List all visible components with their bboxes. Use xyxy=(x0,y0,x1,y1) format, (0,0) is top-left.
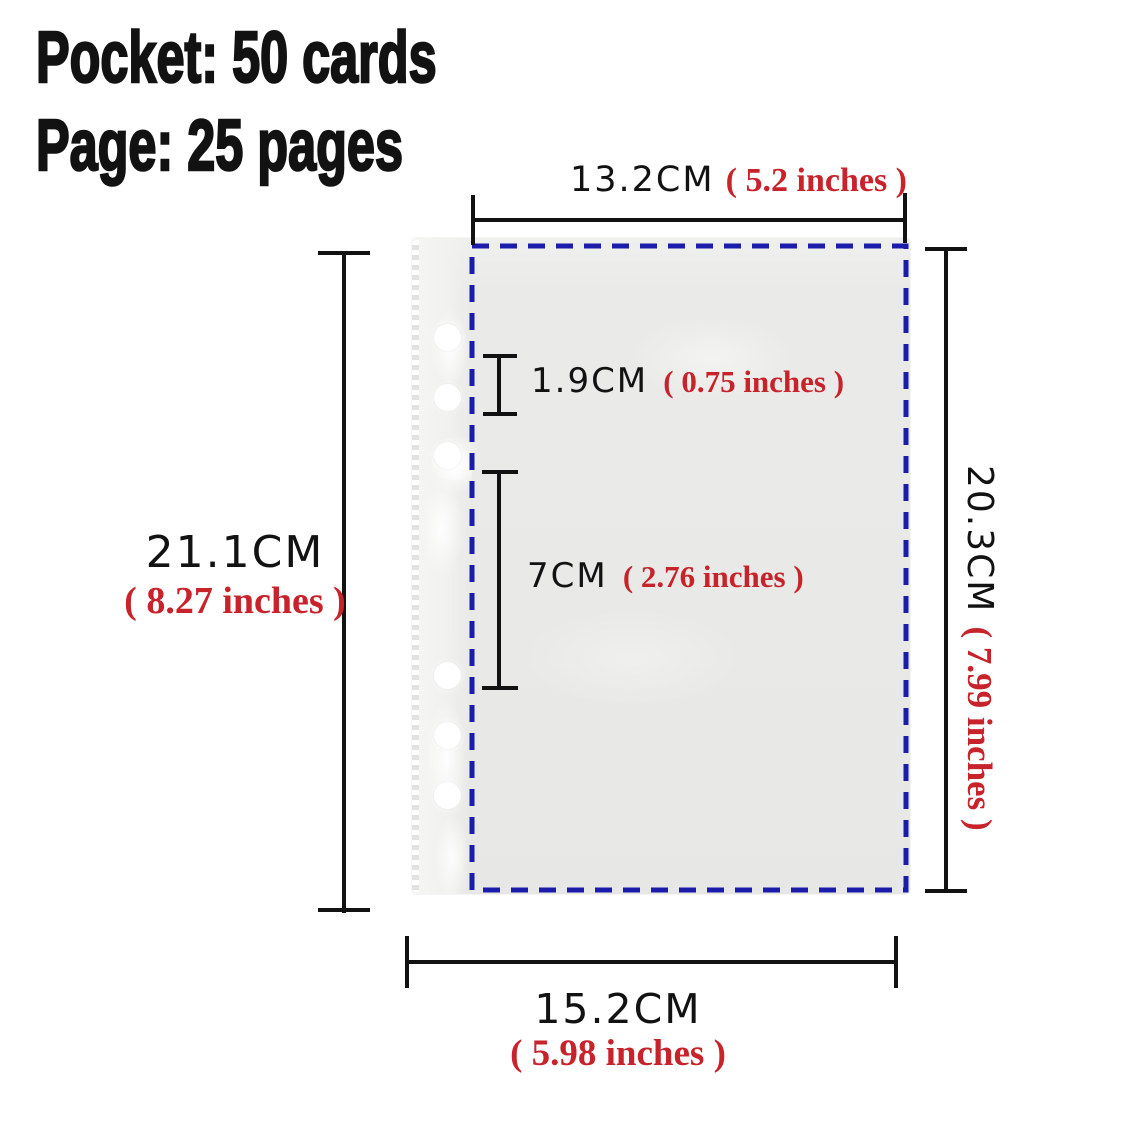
inch-value: ( 5.2 inches ) xyxy=(726,162,907,199)
dimension-label: 13.2CM ( 5.2 inches ) xyxy=(471,160,907,200)
page-count-text: Page: 25 pages xyxy=(36,102,437,190)
dimension-tick xyxy=(903,193,907,243)
cm-value: 7CM xyxy=(527,556,608,596)
dimension-tick xyxy=(318,908,370,912)
dimension-tick xyxy=(894,936,898,988)
dimension-tick xyxy=(483,354,517,358)
dimension-tick xyxy=(482,686,518,690)
dimension-label: 21.1CM ( 8.27 inches ) xyxy=(100,528,370,624)
dimension-line xyxy=(471,218,907,222)
dimension-tick xyxy=(925,889,967,893)
product-dimension-diagram: Pocket: 50 cards Page: 25 pages 13.2CM (… xyxy=(0,0,1129,1129)
dimension-line xyxy=(497,356,501,416)
dimension-tick xyxy=(318,251,370,255)
serrated-edge xyxy=(412,240,419,892)
dimension-line xyxy=(944,247,948,893)
inch-value: ( 2.76 inches ) xyxy=(623,559,804,594)
dimension-tick xyxy=(482,470,518,474)
cm-value: 1.9CM xyxy=(531,361,648,401)
dimension-tick xyxy=(925,247,967,251)
binder-hole xyxy=(434,782,461,809)
inch-value: ( 0.75 inches ) xyxy=(663,364,844,399)
pocket-count-text: Pocket: 50 cards xyxy=(36,14,437,102)
cm-value: 20.3CM xyxy=(959,465,1000,613)
dimension-label: 15.2CM ( 5.98 inches ) xyxy=(418,986,818,1076)
dimension-line xyxy=(405,960,898,964)
dimension-tick xyxy=(483,412,517,416)
dimension-label: 1.9CM ( 0.75 inches ) xyxy=(531,361,844,401)
inch-value: ( 5.98 inches ) xyxy=(418,1032,818,1076)
dimension-label: 7CM ( 2.76 inches ) xyxy=(527,556,804,596)
cm-value: 21.1CM xyxy=(100,528,370,578)
dimension-label: 20.3CM ( 7.99 inches ) xyxy=(956,465,1000,825)
binder-hole xyxy=(434,442,461,469)
binder-hole xyxy=(434,722,461,749)
inch-value: ( 8.27 inches ) xyxy=(100,578,370,624)
cm-value: 15.2CM xyxy=(418,986,818,1032)
cm-value: 13.2CM xyxy=(570,160,715,200)
binder-hole xyxy=(434,662,461,689)
inch-value: ( 7.99 inches ) xyxy=(960,626,999,830)
binder-hole xyxy=(434,324,461,351)
dimension-tick xyxy=(405,936,409,988)
dimension-tick xyxy=(471,195,475,245)
binder-hole xyxy=(434,384,461,411)
dimension-line xyxy=(497,472,501,690)
